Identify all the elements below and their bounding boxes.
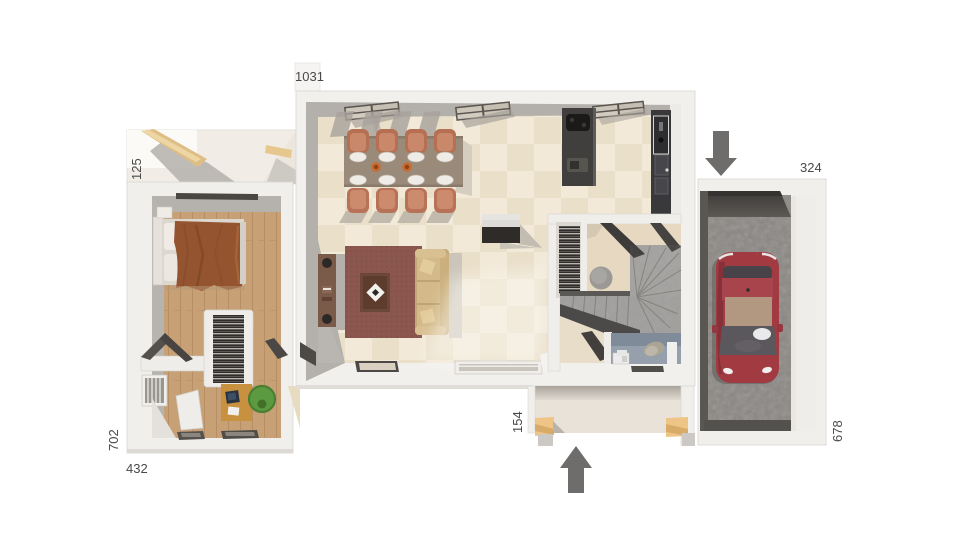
svg-text:1031: 1031 (295, 69, 324, 84)
svg-text:125: 125 (129, 158, 144, 180)
svg-text:432: 432 (126, 461, 148, 476)
svg-text:678: 678 (830, 420, 845, 442)
svg-text:702: 702 (106, 429, 121, 451)
svg-text:324: 324 (800, 160, 822, 175)
svg-text:154: 154 (510, 411, 525, 433)
